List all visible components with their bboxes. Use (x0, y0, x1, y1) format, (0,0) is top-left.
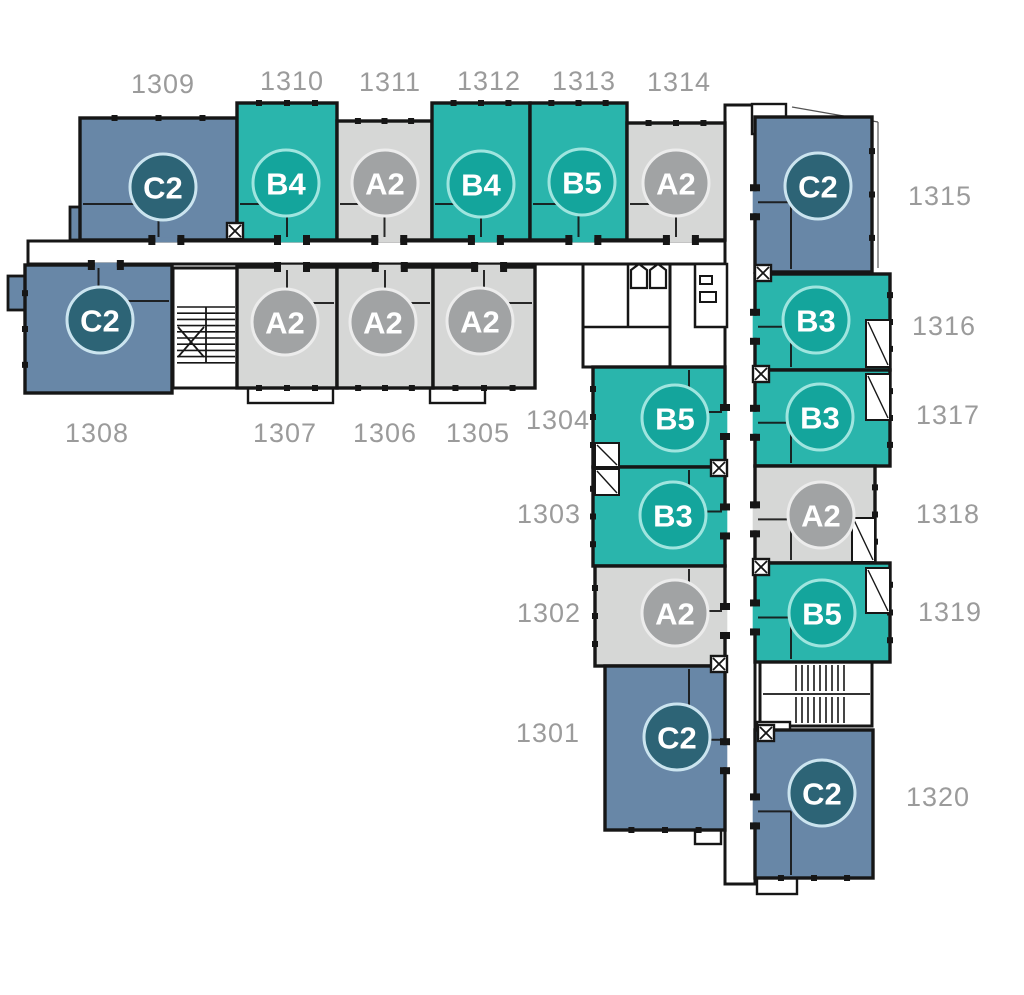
window-marker (700, 120, 706, 126)
door-opening (155, 238, 177, 243)
window-marker (156, 115, 162, 121)
window-marker (22, 326, 28, 332)
window-marker (112, 115, 118, 121)
door-jamb (720, 404, 730, 411)
door-jamb (720, 603, 730, 610)
door-jamb (497, 235, 504, 245)
door-jamb (750, 530, 760, 537)
corridor-vertical (725, 105, 755, 884)
door-jamb (471, 262, 478, 272)
door-opening (753, 191, 758, 213)
unit-1315-number-label: 1315 (908, 181, 972, 211)
door-jamb (750, 213, 760, 220)
unit-1305-type-label: A2 (460, 305, 500, 340)
window-marker (22, 362, 28, 368)
window-marker (869, 192, 875, 198)
door-opening (670, 238, 692, 243)
window-marker (592, 585, 598, 591)
unit-1313-number-label: 1313 (552, 66, 616, 96)
window-marker (662, 827, 668, 833)
unit-1309-type-label: C2 (143, 171, 183, 206)
door-jamb (750, 628, 760, 635)
window-marker (590, 541, 596, 547)
unit-1312-number-label: 1312 (457, 66, 521, 96)
door-opening (478, 265, 500, 270)
door-jamb (720, 532, 730, 539)
window-marker (887, 442, 893, 448)
door-jamb (148, 235, 155, 245)
unit-1319-number-label: 1319 (918, 597, 982, 627)
window-marker (869, 235, 875, 241)
unit-1310-number-label: 1310 (260, 66, 324, 96)
window-marker (887, 292, 893, 298)
unit-1316-number-label: 1316 (912, 311, 976, 341)
door-jamb (468, 235, 475, 245)
unit-1301-number-label: 1301 (516, 718, 580, 748)
window-marker (355, 118, 361, 124)
unit-1304-number-label: 1304 (526, 405, 590, 435)
door-jamb (303, 235, 310, 245)
window-marker (256, 385, 262, 391)
window-marker (696, 827, 702, 833)
unit-1303-number-label: 1303 (517, 499, 581, 529)
window-marker (481, 385, 487, 391)
window-marker (592, 613, 598, 619)
unit-1311-number-label: 1311 (359, 67, 421, 97)
window-marker (590, 514, 596, 520)
unit-1314-number-label: 1314 (647, 67, 711, 97)
door-opening (378, 238, 400, 243)
door-jamb (720, 632, 730, 639)
window-marker (505, 100, 511, 106)
door-opening (379, 265, 401, 270)
unit-1310-type-label: B4 (266, 167, 306, 202)
window-marker (284, 100, 290, 106)
door-opening (753, 412, 758, 434)
window-marker (199, 115, 205, 121)
window-marker (628, 827, 634, 833)
unit-1314-type-label: A2 (656, 167, 696, 202)
door-opening (753, 800, 758, 822)
window-marker (887, 637, 893, 643)
door-jamb (720, 503, 730, 510)
door-jamb (177, 235, 184, 245)
unit-1320-type-label: C2 (802, 777, 842, 812)
unit-1318-type-label: A2 (801, 499, 841, 534)
window-marker (778, 875, 784, 881)
window-marker (673, 120, 679, 126)
door-opening (753, 606, 758, 628)
unit-1320-number-label: 1320 (906, 782, 970, 812)
unit-1302-number-label: 1302 (517, 598, 581, 628)
window-marker (452, 385, 458, 391)
unit-1312-type-label: B4 (461, 168, 501, 203)
door-opening (95, 263, 117, 268)
window-marker (22, 290, 28, 296)
unit-1309-number-label: 1309 (131, 69, 195, 99)
window-marker (284, 385, 290, 391)
unit-1307-type-label: A2 (265, 306, 305, 341)
door-jamb (303, 262, 310, 272)
door-jamb (750, 405, 760, 412)
window-marker (382, 118, 388, 124)
unit-1307-number-label: 1307 (253, 418, 317, 448)
window-marker (592, 641, 598, 647)
door-jamb (274, 235, 281, 245)
unit-1301-type-label: C2 (657, 721, 697, 756)
door-jamb (117, 260, 124, 270)
elevator-car-icon (631, 264, 647, 288)
door-opening (723, 745, 728, 767)
door-opening (475, 238, 497, 243)
window-marker (408, 118, 414, 124)
elevator-car-icon (650, 264, 666, 288)
door-jamb (371, 235, 378, 245)
door-jamb (565, 235, 572, 245)
unit-1304-type-label: B5 (655, 402, 695, 437)
door-opening (753, 508, 758, 530)
unit-1303-type-label: B3 (653, 499, 693, 534)
door-jamb (750, 434, 760, 441)
door-jamb (720, 433, 730, 440)
door-jamb (500, 262, 507, 272)
unit-1306-type-label: A2 (363, 306, 403, 341)
window-marker (382, 385, 388, 391)
unit-1313-type-label: B5 (562, 166, 602, 201)
door-opening (723, 610, 728, 632)
window-marker (312, 385, 318, 391)
door-jamb (692, 235, 699, 245)
door-opening (723, 510, 728, 532)
unit-1308-number-label: 1308 (65, 418, 129, 448)
unit-1319-type-label: B5 (802, 597, 842, 632)
floor-plan-svg: C21309B41310A21311B41312B51313A21314C213… (0, 0, 1024, 995)
door-opening (723, 411, 728, 433)
window-marker (576, 100, 582, 106)
unit-1317-type-label: B3 (800, 401, 840, 436)
door-jamb (372, 262, 379, 272)
door-opening (281, 238, 303, 243)
unit-1305-number-label: 1305 (446, 418, 510, 448)
door-jamb (663, 235, 670, 245)
unit-1315-type-label: C2 (798, 170, 838, 205)
window-marker (312, 100, 318, 106)
window-marker (603, 100, 609, 106)
door-jamb (594, 235, 601, 245)
window-marker (355, 385, 361, 391)
door-jamb (400, 235, 407, 245)
door-jamb (750, 822, 760, 829)
unit-1311-type-label: A2 (365, 167, 405, 202)
unit-1316-type-label: B3 (796, 304, 836, 339)
floor-plan-page: C21309B41310A21311B41312B51313A21314C213… (0, 0, 1024, 995)
window-marker (451, 100, 457, 106)
unit-1306-number-label: 1306 (353, 418, 417, 448)
unit-1308-type-label: C2 (80, 304, 120, 339)
door-jamb (750, 338, 760, 345)
door-jamb (750, 501, 760, 508)
window-marker (409, 385, 415, 391)
door-opening (281, 265, 303, 270)
door-jamb (720, 767, 730, 774)
window-marker (646, 120, 652, 126)
door-jamb (88, 260, 95, 270)
door-jamb (274, 262, 281, 272)
door-opening (572, 238, 594, 243)
window-marker (478, 100, 484, 106)
door-opening (753, 316, 758, 338)
window-marker (590, 414, 596, 420)
window-marker (844, 875, 850, 881)
window-marker (869, 148, 875, 154)
unit-1302-type-label: A2 (655, 597, 695, 632)
window-marker (510, 385, 516, 391)
window-marker (872, 512, 878, 518)
window-marker (256, 100, 262, 106)
unit-1317-number-label: 1317 (916, 400, 980, 430)
stairwell-west (173, 268, 237, 388)
door-jamb (750, 309, 760, 316)
door-jamb (720, 738, 730, 745)
window-marker (590, 386, 596, 392)
window-marker (872, 484, 878, 490)
window-marker (548, 100, 554, 106)
door-jamb (401, 262, 408, 272)
door-jamb (750, 793, 760, 800)
window-marker (811, 875, 817, 881)
unit-1318-number-label: 1318 (916, 499, 980, 529)
door-jamb (750, 599, 760, 606)
door-jamb (750, 184, 760, 191)
